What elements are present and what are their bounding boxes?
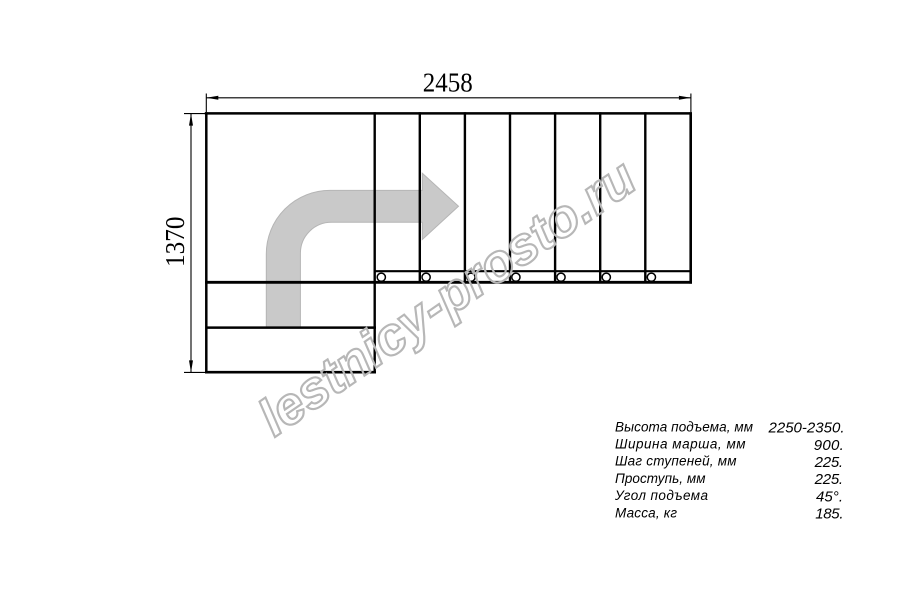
svg-text:2458: 2458 xyxy=(423,67,473,98)
svg-text:225.: 225. xyxy=(814,454,844,471)
svg-text:Высота подъема, мм: Высота подъема, мм xyxy=(615,419,753,434)
svg-text:2250-2350.: 2250-2350. xyxy=(768,420,845,437)
svg-text:900.: 900. xyxy=(814,437,844,454)
svg-text:Проступь, мм: Проступь, мм xyxy=(615,471,706,486)
svg-text:1370: 1370 xyxy=(159,217,190,267)
svg-text:Шаг ступеней, мм: Шаг ступеней, мм xyxy=(615,454,737,469)
svg-text:lestnicy-prosto.ru: lestnicy-prosto.ru xyxy=(248,148,647,448)
svg-text:Масса, кг: Масса, кг xyxy=(615,505,677,520)
svg-text:45°.: 45°. xyxy=(816,488,843,505)
svg-text:185.: 185. xyxy=(815,506,843,523)
svg-text:Ширина марша, мм: Ширина марша, мм xyxy=(615,437,746,452)
svg-text:Угол подъема: Угол подъема xyxy=(614,488,708,503)
svg-text:225.: 225. xyxy=(814,471,844,488)
